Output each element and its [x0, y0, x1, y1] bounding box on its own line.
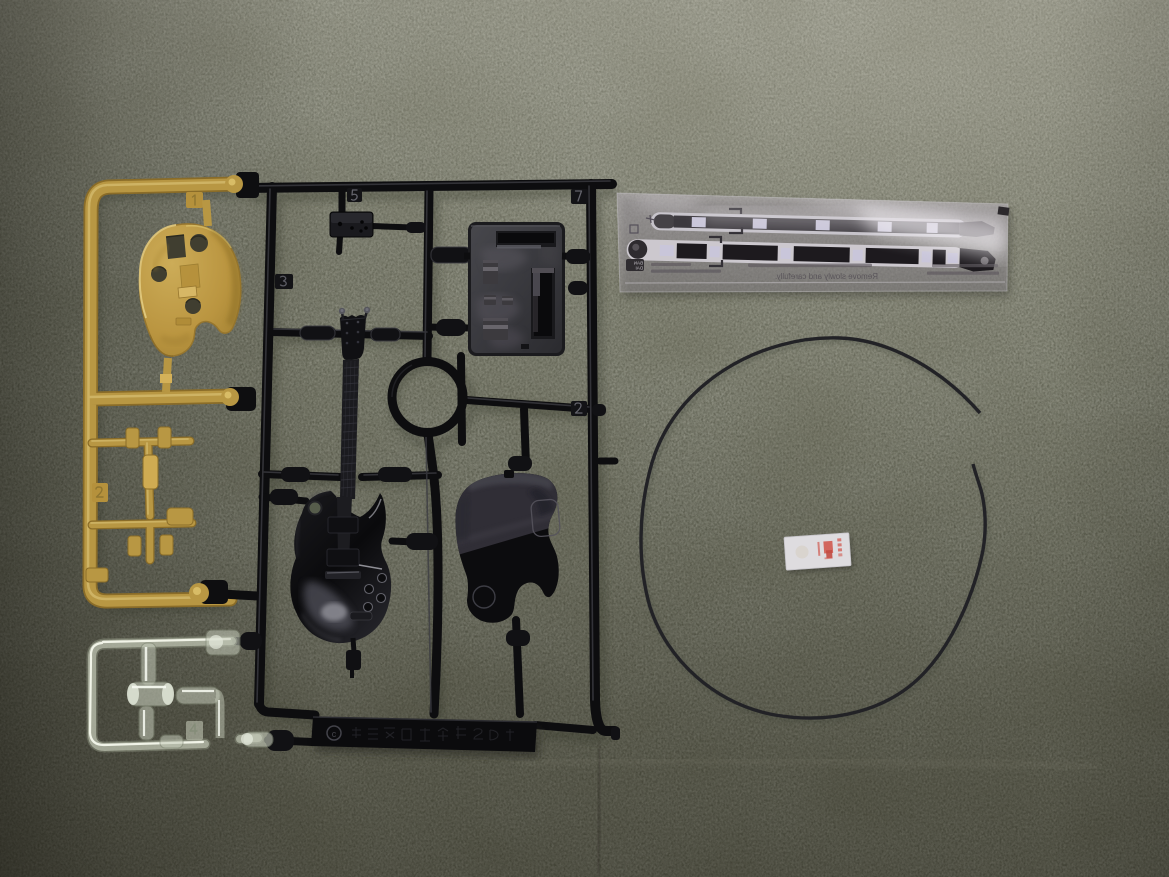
svg-text:DAI: DAI	[635, 266, 643, 271]
svg-text:Remove slowly and carefully.: Remove slowly and carefully.	[775, 272, 878, 281]
svg-text:c: c	[332, 729, 337, 739]
